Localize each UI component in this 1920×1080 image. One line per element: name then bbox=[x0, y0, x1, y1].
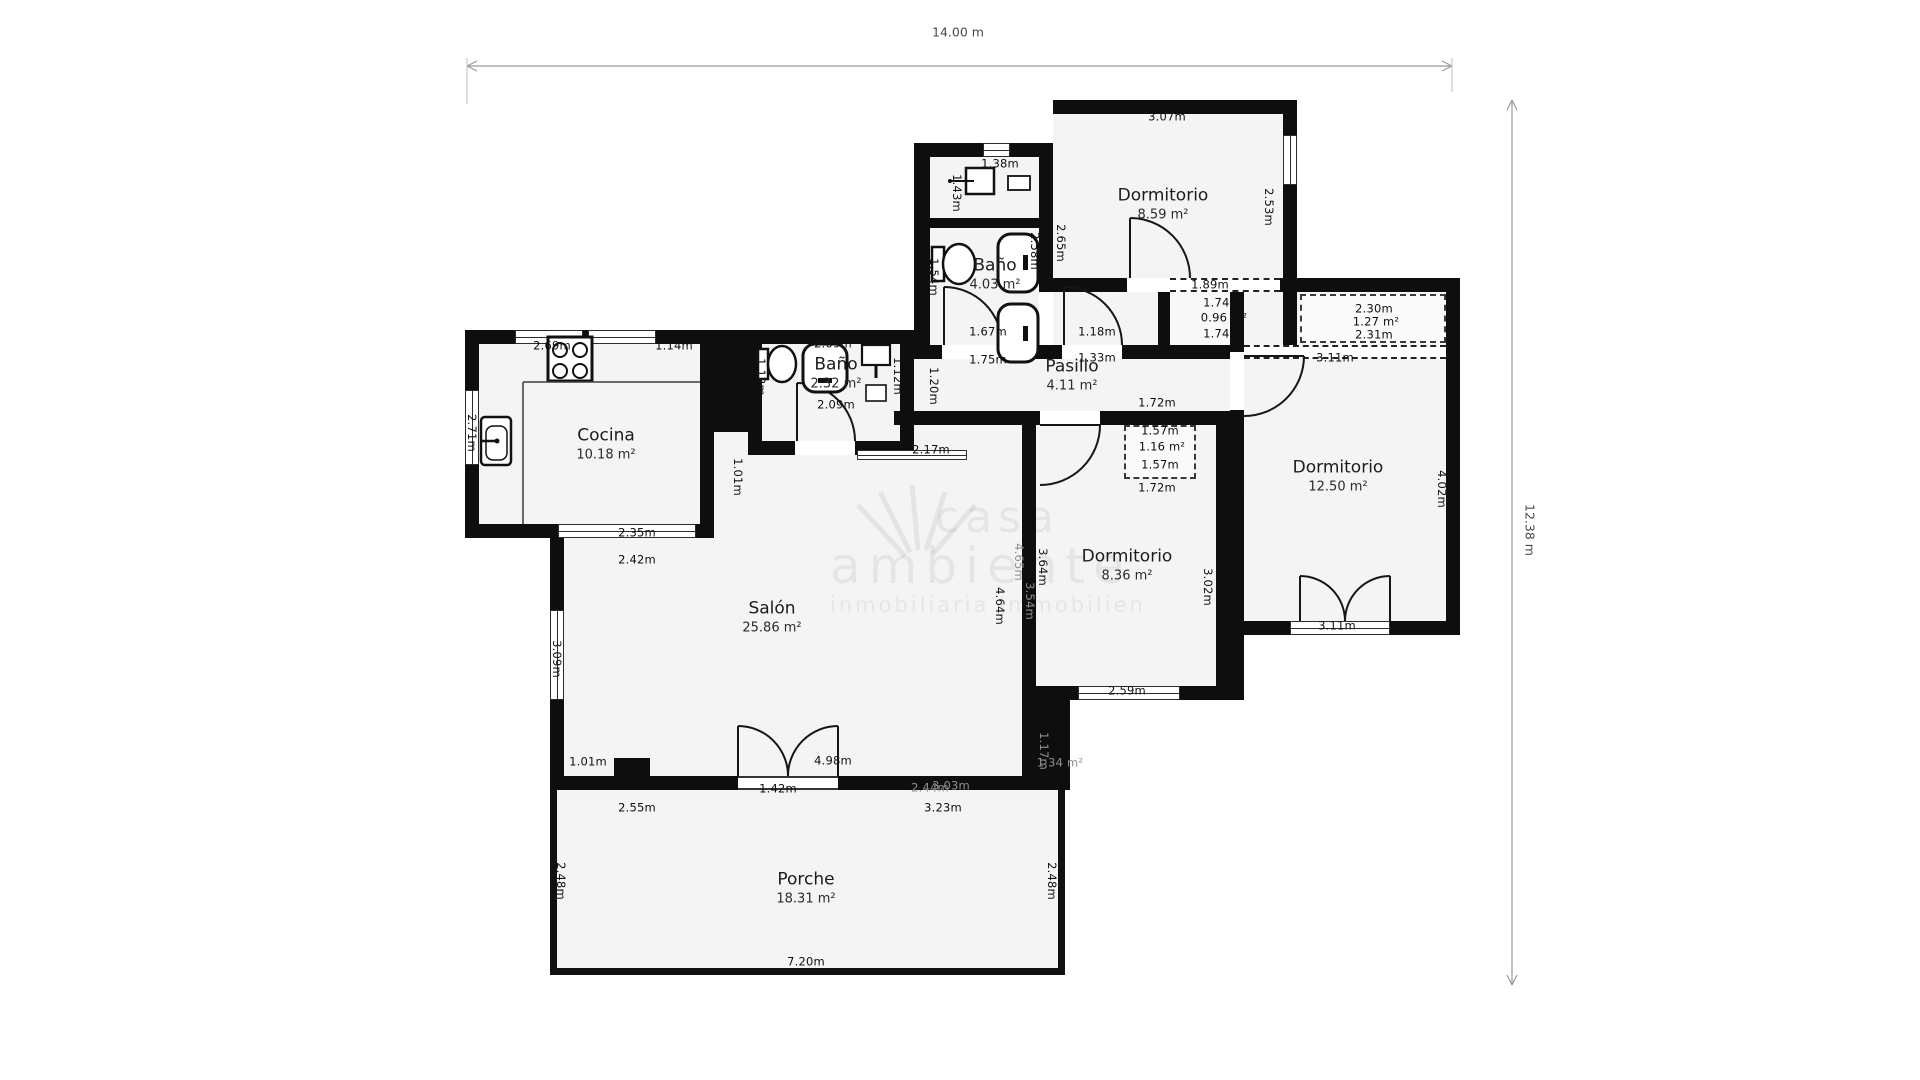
dimension-label: 1.01m bbox=[731, 458, 743, 496]
wall bbox=[714, 330, 748, 432]
room-area: 4.11 m² bbox=[1045, 379, 1098, 394]
dimension-label: 3.11m bbox=[1316, 352, 1354, 364]
dimension-label: 4.02m bbox=[1232, 470, 1244, 508]
room-area: 8.59 m² bbox=[1118, 208, 1209, 223]
dimension-label: 2.31m bbox=[1355, 329, 1393, 341]
dimension-label: 2.65m bbox=[1054, 224, 1066, 262]
wall bbox=[914, 143, 930, 359]
dimension-label: 1.01m bbox=[569, 756, 607, 768]
wall bbox=[930, 218, 1039, 228]
floor-plan: casa ambiente inmobiliaria immobilien 14… bbox=[0, 0, 1920, 1080]
room-area: 4.03 m² bbox=[970, 278, 1021, 293]
scale-height-label: 12.38 m bbox=[1523, 504, 1538, 556]
dimension-label: 1.38m bbox=[981, 158, 1019, 170]
room-area: 12.50 m² bbox=[1293, 480, 1384, 495]
dimension-label: 3.02m bbox=[1201, 568, 1213, 606]
dimension-label: 1.18m bbox=[1078, 326, 1116, 338]
room-floor-salon bbox=[564, 538, 1022, 776]
room-name: Salón bbox=[742, 599, 801, 619]
scale-width-label: 14.00 m bbox=[932, 25, 984, 40]
window bbox=[1283, 135, 1297, 185]
dimension-label: 1.72m bbox=[1138, 397, 1176, 409]
dimension-label: 3.64m bbox=[1036, 548, 1048, 586]
dimension-label: 2.53m bbox=[1262, 188, 1274, 226]
dimension-label: 4.98m bbox=[814, 755, 852, 767]
dimension-label: 2.58m bbox=[1028, 232, 1040, 270]
room-name: Dormitorio bbox=[1082, 547, 1173, 567]
dimension-label: 2.48m bbox=[1045, 862, 1057, 900]
room-area: 2.32 m² bbox=[811, 377, 862, 392]
room-label-cocina: Cocina10.18 m² bbox=[576, 426, 635, 463]
dimension-label: 1.12m bbox=[891, 357, 903, 395]
room-label-dormitorio-right: Dormitorio12.50 m² bbox=[1293, 458, 1384, 495]
dimension-label: 1.12m bbox=[754, 358, 766, 396]
wall bbox=[1216, 425, 1244, 700]
dimension-label: 1.54m bbox=[927, 258, 939, 296]
dimension-label: 2.09m bbox=[814, 338, 852, 350]
dimension-label: 2.42m bbox=[618, 554, 656, 566]
dimension-label: 2.17m bbox=[912, 444, 950, 456]
scale-height-line bbox=[1507, 100, 1517, 985]
dimension-label: 1.20m bbox=[927, 367, 939, 405]
dimension-label: 4.02m bbox=[1435, 470, 1447, 508]
dimension-label: 2.35m bbox=[618, 527, 656, 539]
dimension-label: 3.03m bbox=[932, 780, 970, 792]
dimension-label: 3.54m bbox=[1023, 582, 1035, 620]
dimension-label: 1.42m bbox=[759, 783, 797, 795]
room-name: Baño bbox=[970, 256, 1021, 276]
room-label-porche: Porche18.31 m² bbox=[776, 870, 835, 907]
dimension-label: 1.14m bbox=[655, 340, 693, 352]
dimension-label: 2.94m bbox=[702, 408, 714, 446]
room-name: Cocina bbox=[576, 426, 635, 446]
dimension-label: 2.71m bbox=[465, 414, 477, 452]
door-opening bbox=[1040, 411, 1100, 425]
dimension-label: 3.09m bbox=[550, 640, 562, 678]
wall-notch bbox=[614, 758, 650, 776]
dimension-label: 1.33m bbox=[1078, 352, 1116, 364]
room-name: Dormitorio bbox=[1293, 458, 1384, 478]
scale-width-line bbox=[467, 58, 1452, 104]
dimension-label: 3.11m bbox=[1318, 620, 1356, 632]
dimension-label: 1.27 m² bbox=[1353, 316, 1399, 328]
dimension-label: 2.59m bbox=[1108, 685, 1146, 697]
dimension-label: 1.67m bbox=[969, 326, 1007, 338]
wall bbox=[1158, 292, 1170, 345]
room-area: 25.86 m² bbox=[742, 621, 801, 636]
dimension-label: 1.57m bbox=[1141, 425, 1179, 437]
dimension-label: 7.20m bbox=[787, 956, 825, 968]
room-label-bano-2: Baño2.32 m² bbox=[811, 355, 862, 392]
dimension-label: 0.96 m² bbox=[1201, 312, 1247, 324]
room-area: 18.31 m² bbox=[776, 892, 835, 907]
room-name: Dormitorio bbox=[1118, 186, 1209, 206]
dimension-label: 2.55m bbox=[618, 802, 656, 814]
porche-wall bbox=[550, 968, 1065, 975]
door-opening bbox=[1230, 352, 1244, 410]
dimension-label: 1.89m bbox=[1191, 279, 1229, 291]
dimension-label: 2.30m bbox=[1355, 303, 1393, 315]
room-label-bano-1: Baño4.03 m² bbox=[970, 256, 1021, 293]
room-label-dormitorio-mid: Dormitorio8.36 m² bbox=[1082, 547, 1173, 584]
door-opening bbox=[795, 441, 855, 455]
wall bbox=[1039, 143, 1053, 157]
window bbox=[983, 143, 1010, 157]
room-name: Baño bbox=[811, 355, 862, 375]
dimension-label: 1.74m bbox=[1203, 297, 1241, 309]
window bbox=[588, 330, 656, 344]
dimension-label: 2.09m bbox=[817, 399, 855, 411]
room-area: 8.36 m² bbox=[1082, 569, 1173, 584]
dimension-label: 2.69m bbox=[533, 340, 571, 352]
room-label-dormitorio-top: Dormitorio8.59 m² bbox=[1118, 186, 1209, 223]
room-name: Porche bbox=[776, 870, 835, 890]
dimension-label: 3.07m bbox=[1148, 111, 1186, 123]
dimension-label: 4.64m bbox=[993, 587, 1005, 625]
dimension-label: 3.23m bbox=[924, 802, 962, 814]
wall bbox=[1446, 292, 1460, 635]
dimension-label: 1.72m bbox=[1138, 482, 1176, 494]
dimension-label: 1.16 m² bbox=[1139, 441, 1185, 453]
dimension-label: 1.75m bbox=[969, 354, 1007, 366]
dimension-label: 1.34 m² bbox=[1037, 757, 1083, 769]
room-label-salon: Salón25.86 m² bbox=[742, 599, 801, 636]
room-area: 10.18 m² bbox=[576, 448, 635, 463]
dimension-label: 1.57m bbox=[1141, 459, 1179, 471]
dimension-label: 4.65m bbox=[1012, 543, 1024, 581]
porche-wall bbox=[1058, 790, 1065, 975]
dimension-label: 1.74m bbox=[1203, 328, 1241, 340]
dimension-label: 2.48m bbox=[554, 862, 566, 900]
dimension-label: 1.43m bbox=[950, 174, 962, 212]
